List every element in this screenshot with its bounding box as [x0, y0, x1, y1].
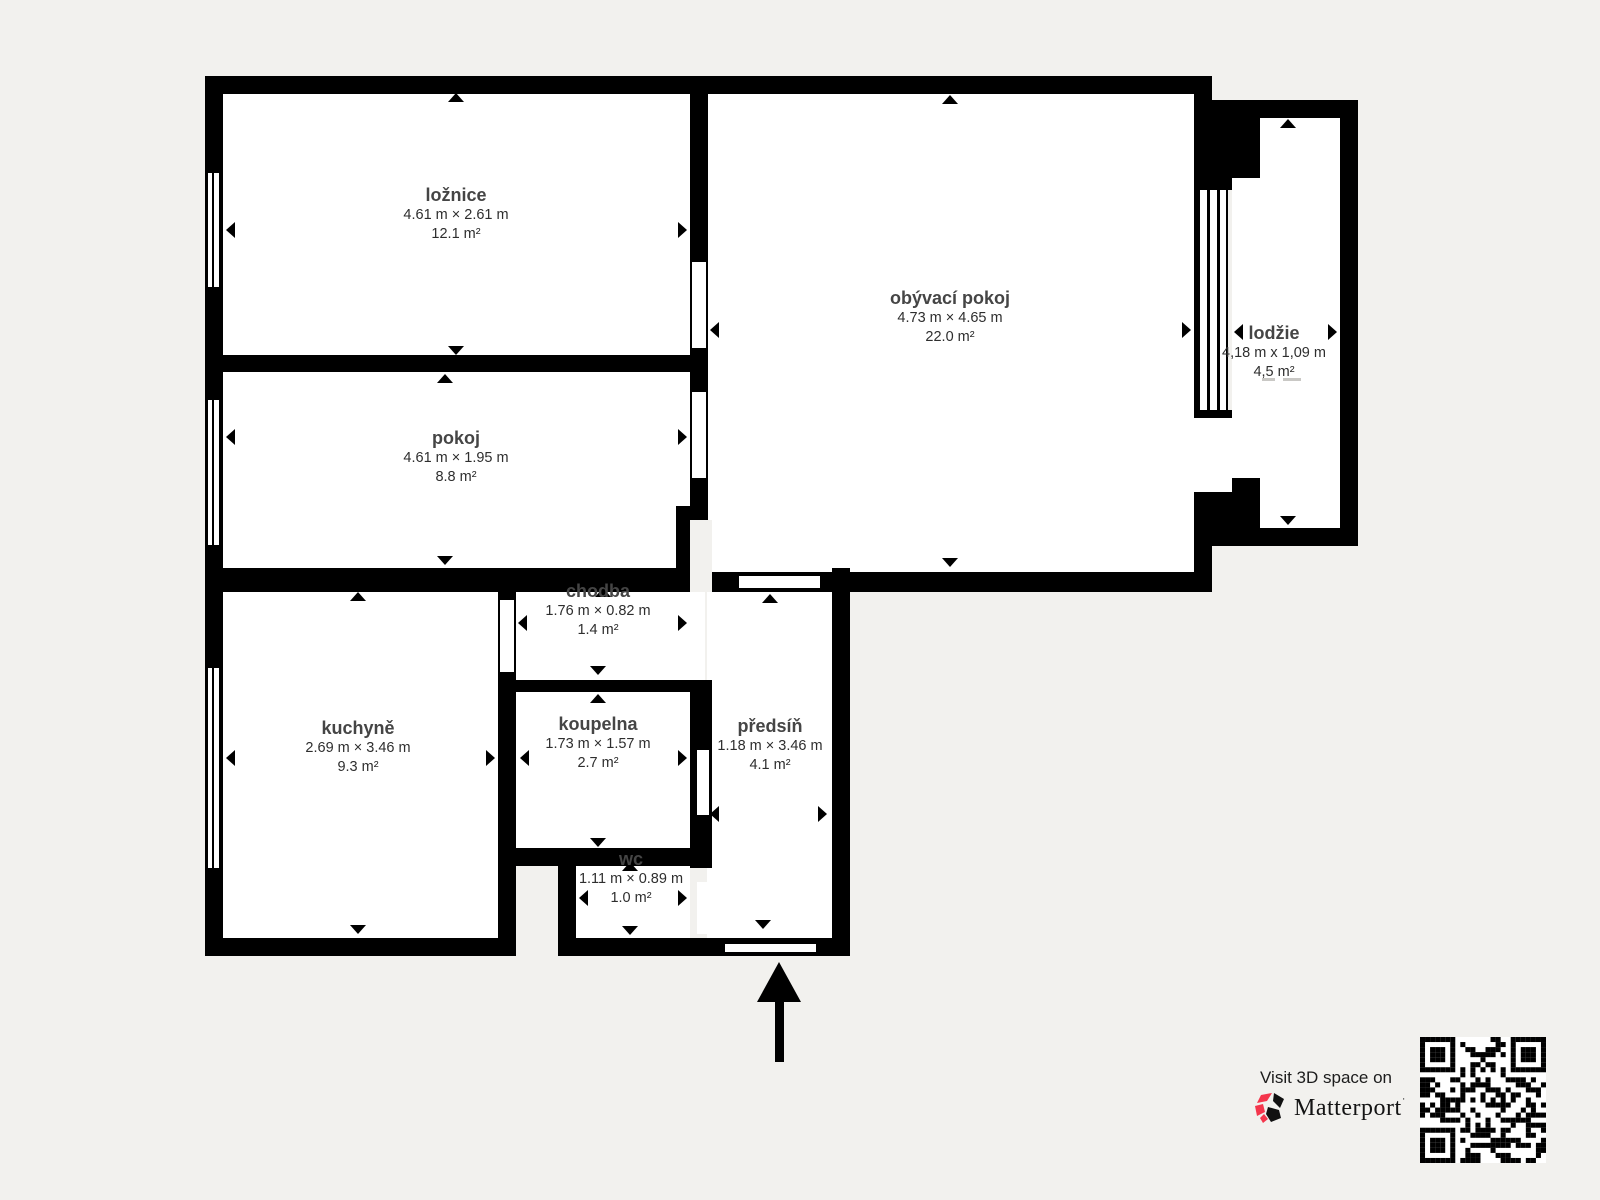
measure-arrow-up-icon	[448, 93, 464, 102]
measure-arrow-up-icon	[1280, 119, 1296, 128]
measure-arrow-right-icon	[818, 806, 827, 822]
measure-arrow-up-icon	[437, 374, 453, 383]
measure-arrow-down-icon	[350, 925, 366, 934]
room-area: 4,5 m²	[1199, 363, 1349, 381]
window-pokoj	[206, 400, 221, 545]
room-area: 1.0 m²	[521, 889, 741, 907]
door-predsin-obyvaci	[737, 574, 822, 590]
room-label-kuchyne: kuchyně 2.69 m × 3.46 m 9.3 m²	[248, 717, 468, 776]
door-pokoj	[692, 392, 706, 478]
wall-lodzie-left-bottom	[1212, 492, 1232, 546]
room-dimensions: 4,18 m x 1,09 m	[1199, 344, 1349, 363]
room-area: 9.3 m²	[248, 758, 468, 776]
room-dimensions: 4.61 m × 2.61 m	[346, 206, 566, 225]
room-area: 8.8 m²	[346, 468, 566, 486]
matterport-logo-icon	[1254, 1092, 1286, 1124]
room-area: 4.1 m²	[660, 756, 880, 774]
measure-arrow-down-icon	[1280, 516, 1296, 525]
room-label-loznice: ložnice 4.61 m × 2.61 m 12.1 m²	[346, 184, 566, 243]
qr-code	[1420, 1037, 1546, 1163]
room-label-lodzie: lodžie 4,18 m x 1,09 m 4,5 m²	[1199, 322, 1349, 381]
room-name: kuchyně	[248, 717, 468, 739]
room-name: ložnice	[346, 184, 566, 206]
wall-koupelna-top	[516, 680, 712, 692]
wall-lodzie-left-mid	[1212, 410, 1232, 418]
matterport-wordmark: Matterport˙	[1294, 1095, 1406, 1122]
room-dimensions: 1.18 m × 3.46 m	[660, 737, 880, 756]
measure-arrow-right-icon	[678, 429, 687, 445]
measure-arrow-left-icon	[226, 429, 235, 445]
room-label-pokoj: pokoj 4.61 m × 1.95 m 8.8 m²	[346, 427, 566, 486]
window-loznice	[206, 173, 221, 287]
measure-arrow-down-icon	[622, 926, 638, 935]
room-area: 22.0 m²	[840, 328, 1060, 346]
wall-lodzie-corner-bottom	[1232, 478, 1260, 528]
room-name: předsíň	[660, 715, 880, 737]
matterport-brand: Matterport˙	[1254, 1092, 1406, 1124]
wall-loznice-pokoj	[223, 355, 690, 372]
wall-lodzie-left-top	[1212, 100, 1232, 190]
room-dimensions: 1.76 m × 0.82 m	[488, 602, 708, 621]
matterport-trademark: ˙	[1402, 1095, 1407, 1109]
measure-arrow-down-icon	[448, 346, 464, 355]
room-area: 1.4 m²	[488, 621, 708, 639]
room-dimensions: 4.73 m × 4.65 m	[840, 309, 1060, 328]
measure-arrow-down-icon	[590, 838, 606, 847]
room-label-obyvaci-pokoj: obývací pokoj 4.73 m × 4.65 m 22.0 m²	[840, 287, 1060, 346]
room-name: chodba	[488, 580, 708, 602]
door-loznice	[692, 262, 706, 348]
measure-arrow-left-icon	[226, 222, 235, 238]
wall-outer-top	[205, 76, 1212, 94]
wall-lodzie-bottom	[1212, 528, 1358, 546]
room-name: lodžie	[1199, 322, 1349, 344]
measure-arrow-up-icon	[350, 592, 366, 601]
wall-lodzie-corner-top	[1232, 118, 1260, 178]
wall-outer-bottom-left	[205, 938, 516, 956]
measure-arrow-left-icon	[710, 806, 719, 822]
measure-arrow-left-icon	[710, 322, 719, 338]
window-kuchyne	[206, 668, 221, 868]
measure-arrow-up-icon	[942, 95, 958, 104]
visit-3d-space-text: Visit 3D space on	[1152, 1068, 1392, 1088]
entrance-arrow-stem	[775, 1000, 784, 1062]
room-label-predsin: předsíň 1.18 m × 3.46 m 4.1 m²	[660, 715, 880, 774]
wall-lodzie-top	[1212, 100, 1358, 118]
entrance-arrow-head	[757, 962, 801, 1002]
measure-arrow-up-icon	[590, 694, 606, 703]
room-name: obývací pokoj	[840, 287, 1060, 309]
room-name: pokoj	[346, 427, 566, 449]
measure-arrow-right-icon	[678, 222, 687, 238]
measure-arrow-down-icon	[437, 556, 453, 565]
entrance-door-sill	[723, 942, 818, 954]
measure-arrow-down-icon	[942, 558, 958, 567]
measure-arrow-down-icon	[590, 666, 606, 675]
measure-arrow-right-icon	[1182, 322, 1191, 338]
measure-arrow-up-icon	[762, 594, 778, 603]
measure-arrow-down-icon	[755, 920, 771, 929]
room-area: 12.1 m²	[346, 225, 566, 243]
door-lodzie	[1194, 418, 1232, 492]
room-dimensions: 1.11 m × 0.89 m	[521, 870, 741, 889]
room-label-wc: wc 1.11 m × 0.89 m 1.0 m²	[521, 848, 741, 907]
room-dimensions: 2.69 m × 3.46 m	[248, 739, 468, 758]
floorplan-page: { "floorplan": { "rooms": [ {"name":"lož…	[0, 0, 1600, 1200]
measure-arrow-left-icon	[226, 750, 235, 766]
room-name: wc	[521, 848, 741, 870]
room-label-chodba: chodba 1.76 m × 0.82 m 1.4 m²	[488, 580, 708, 639]
room-dimensions: 4.61 m × 1.95 m	[346, 449, 566, 468]
